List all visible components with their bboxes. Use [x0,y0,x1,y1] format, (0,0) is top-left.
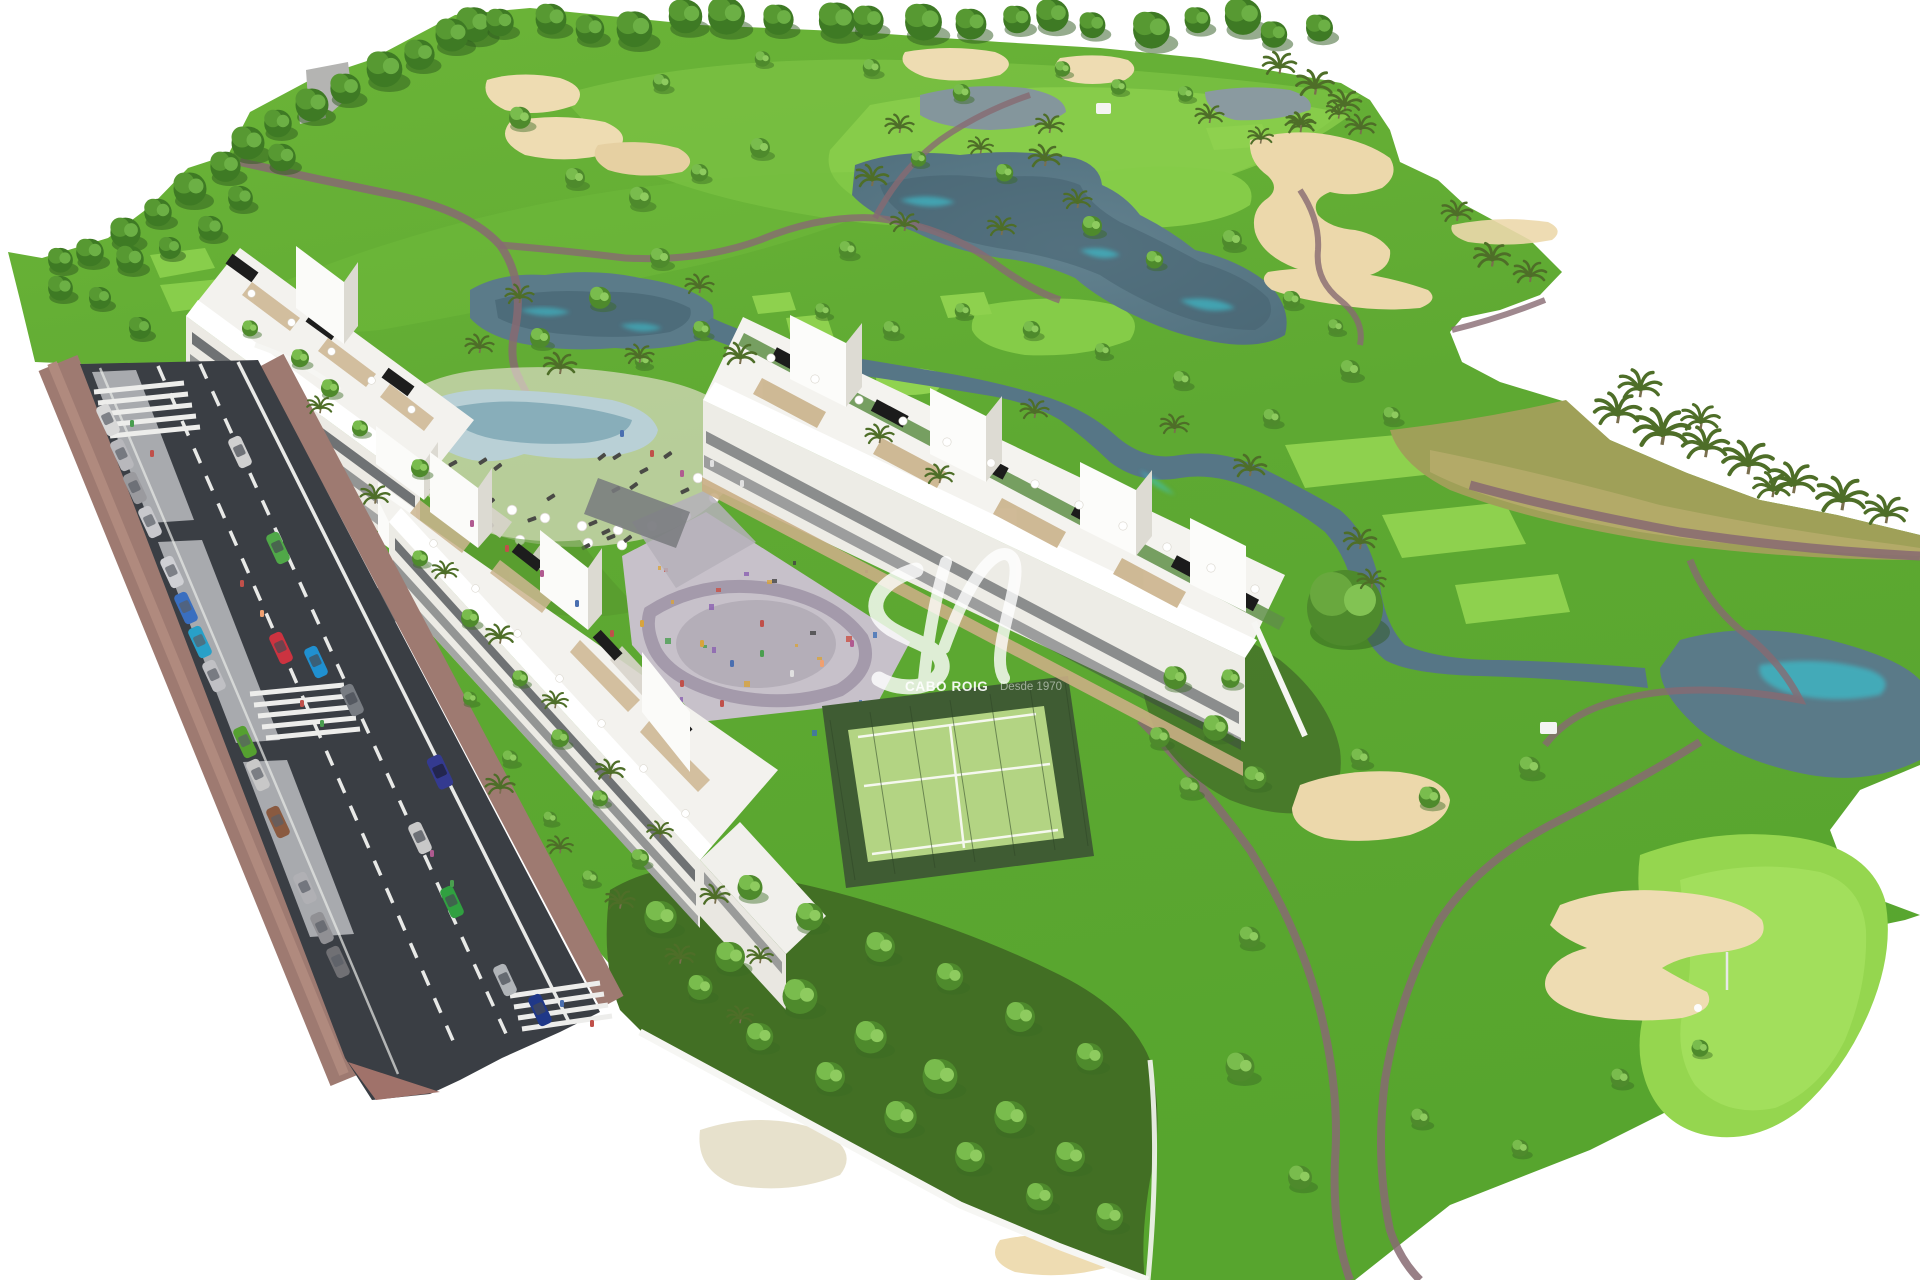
svg-text:CABO ROIG: CABO ROIG [905,679,988,694]
svg-text:Desde 1970: Desde 1970 [1000,681,1062,693]
